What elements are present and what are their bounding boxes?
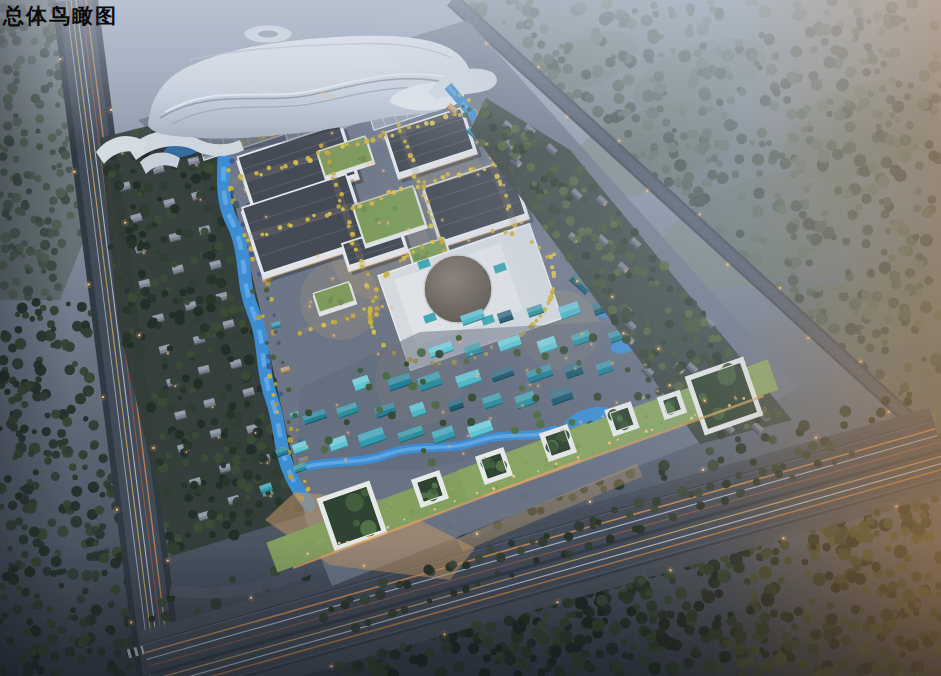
page-title: 总体鸟瞰图 [3,2,118,30]
rendering-canvas [0,0,941,676]
aerial-rendering: 总体鸟瞰图 [0,0,941,676]
atmosphere-overlays [0,0,941,676]
